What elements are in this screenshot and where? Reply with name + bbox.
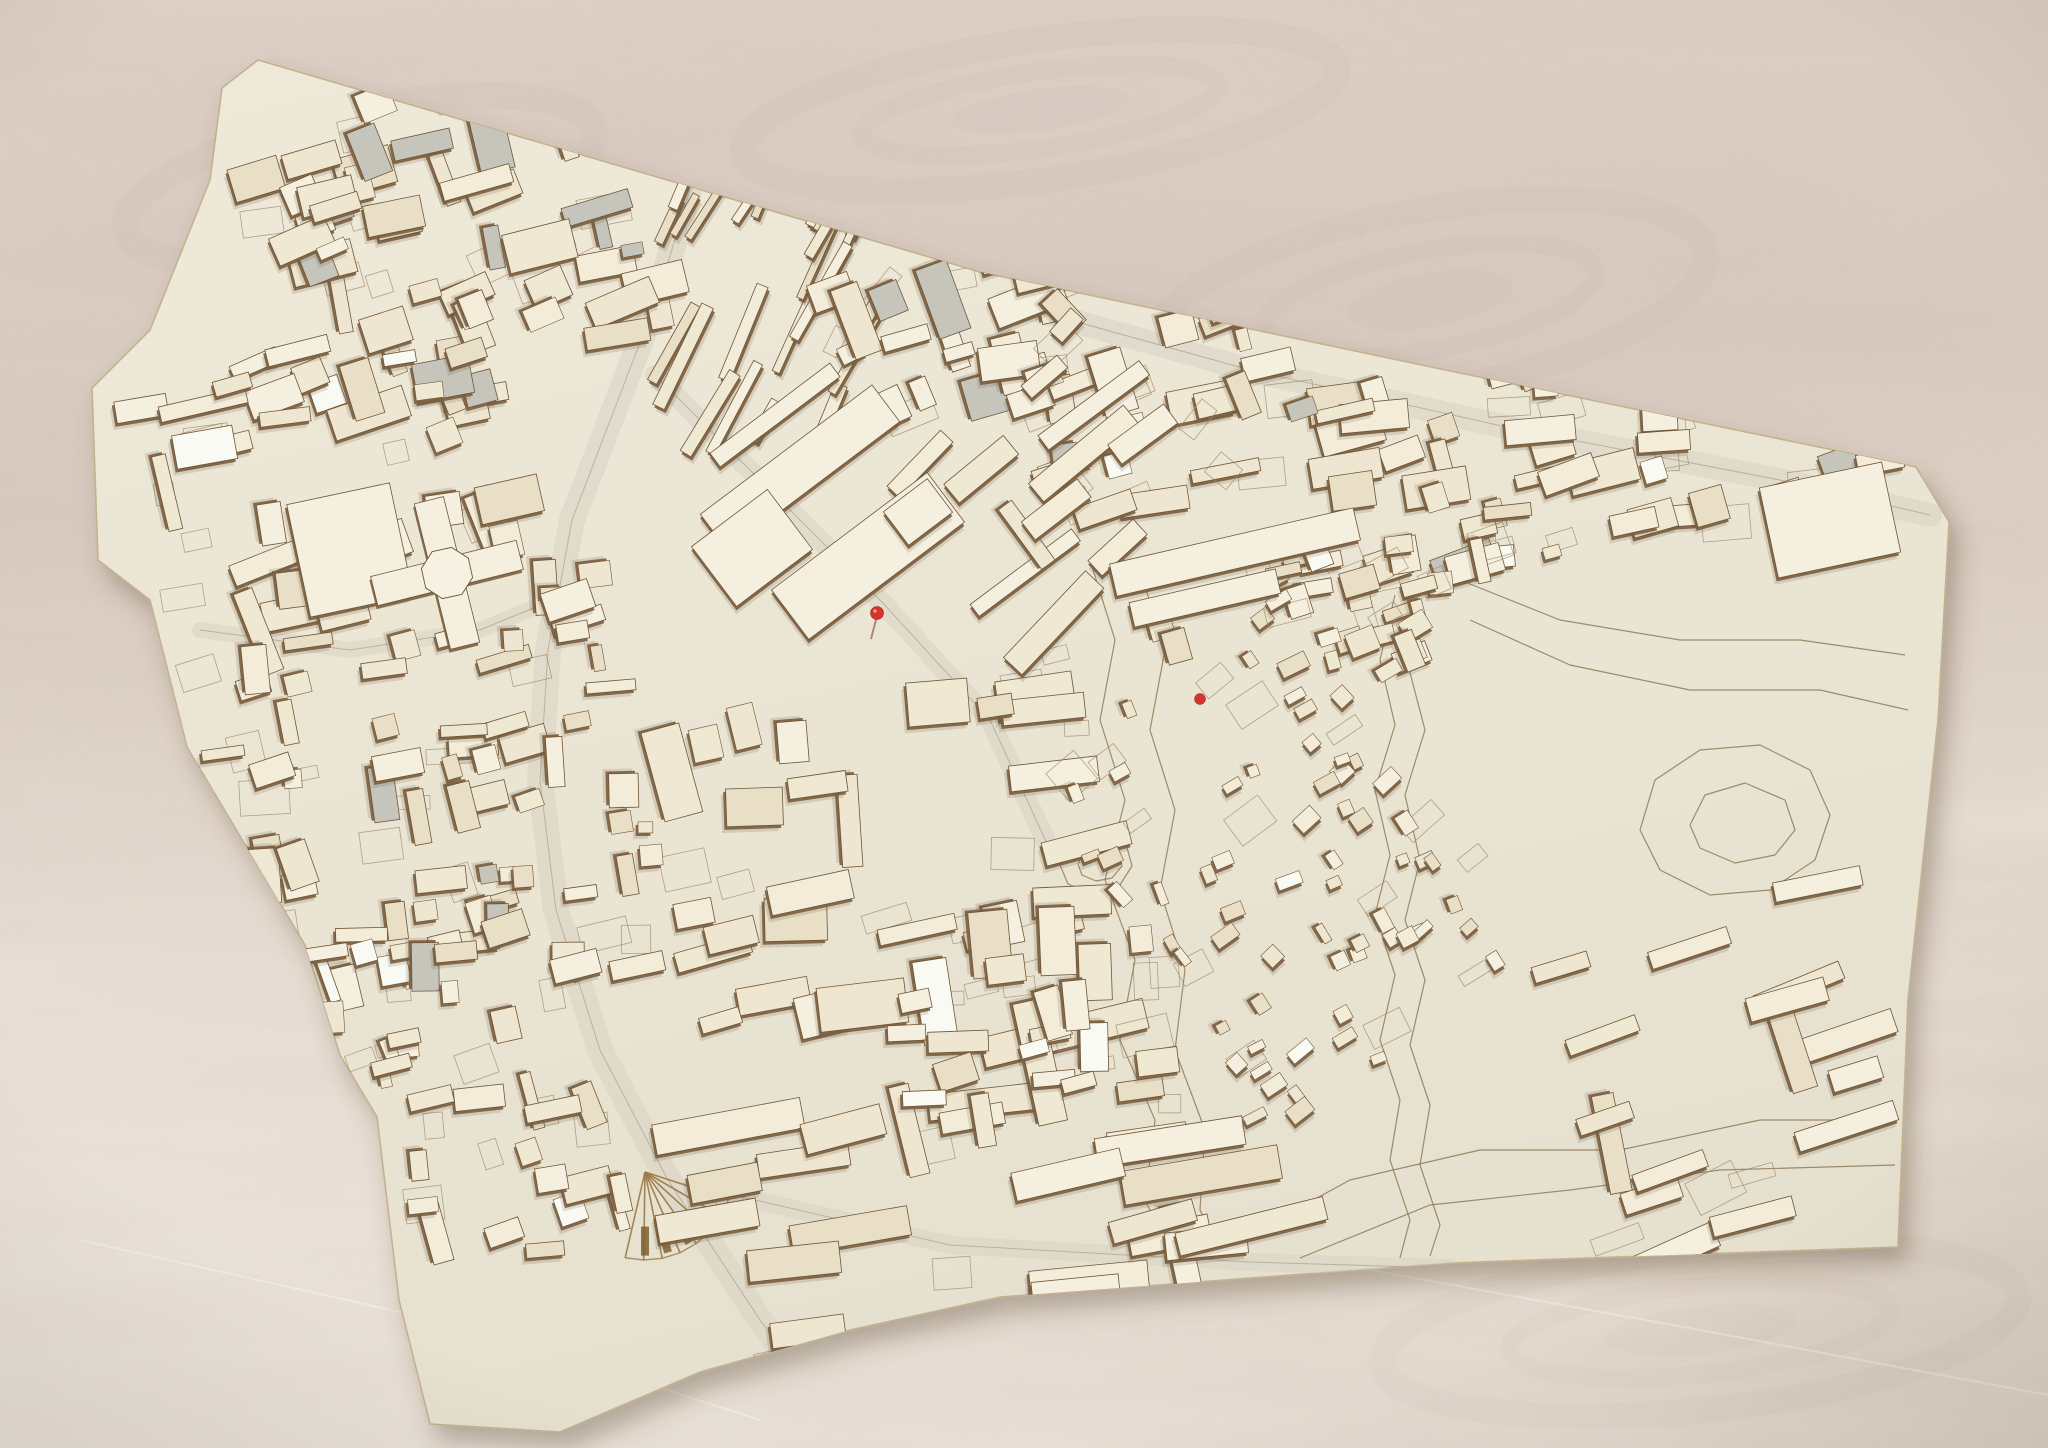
building-block <box>1032 901 1077 976</box>
building-block <box>521 1241 566 1265</box>
building-block <box>901 678 971 733</box>
building-block <box>602 768 638 808</box>
building-block <box>530 1164 570 1200</box>
building-block <box>448 1084 506 1118</box>
building-block <box>1379 534 1414 561</box>
building-block <box>882 1024 926 1048</box>
city-model-svg <box>0 0 2048 1448</box>
building-block <box>1055 974 1090 1031</box>
building-block <box>1632 429 1691 459</box>
red-dot <box>1195 694 1206 705</box>
building-block <box>720 787 783 833</box>
building-block <box>1124 925 1154 960</box>
building-block <box>980 954 1027 992</box>
building-block <box>402 1196 439 1221</box>
building-block <box>410 865 468 900</box>
building-block <box>923 1030 989 1059</box>
building-block <box>429 941 478 970</box>
building-block <box>435 723 487 743</box>
building-block <box>234 639 270 695</box>
building-block <box>539 731 565 787</box>
photo-of-architectural-model <box>0 0 2048 1448</box>
building-block <box>402 1145 429 1182</box>
building-block <box>770 715 809 764</box>
building-block <box>409 381 445 407</box>
building-block <box>897 1090 946 1113</box>
building-block <box>1131 1046 1181 1083</box>
